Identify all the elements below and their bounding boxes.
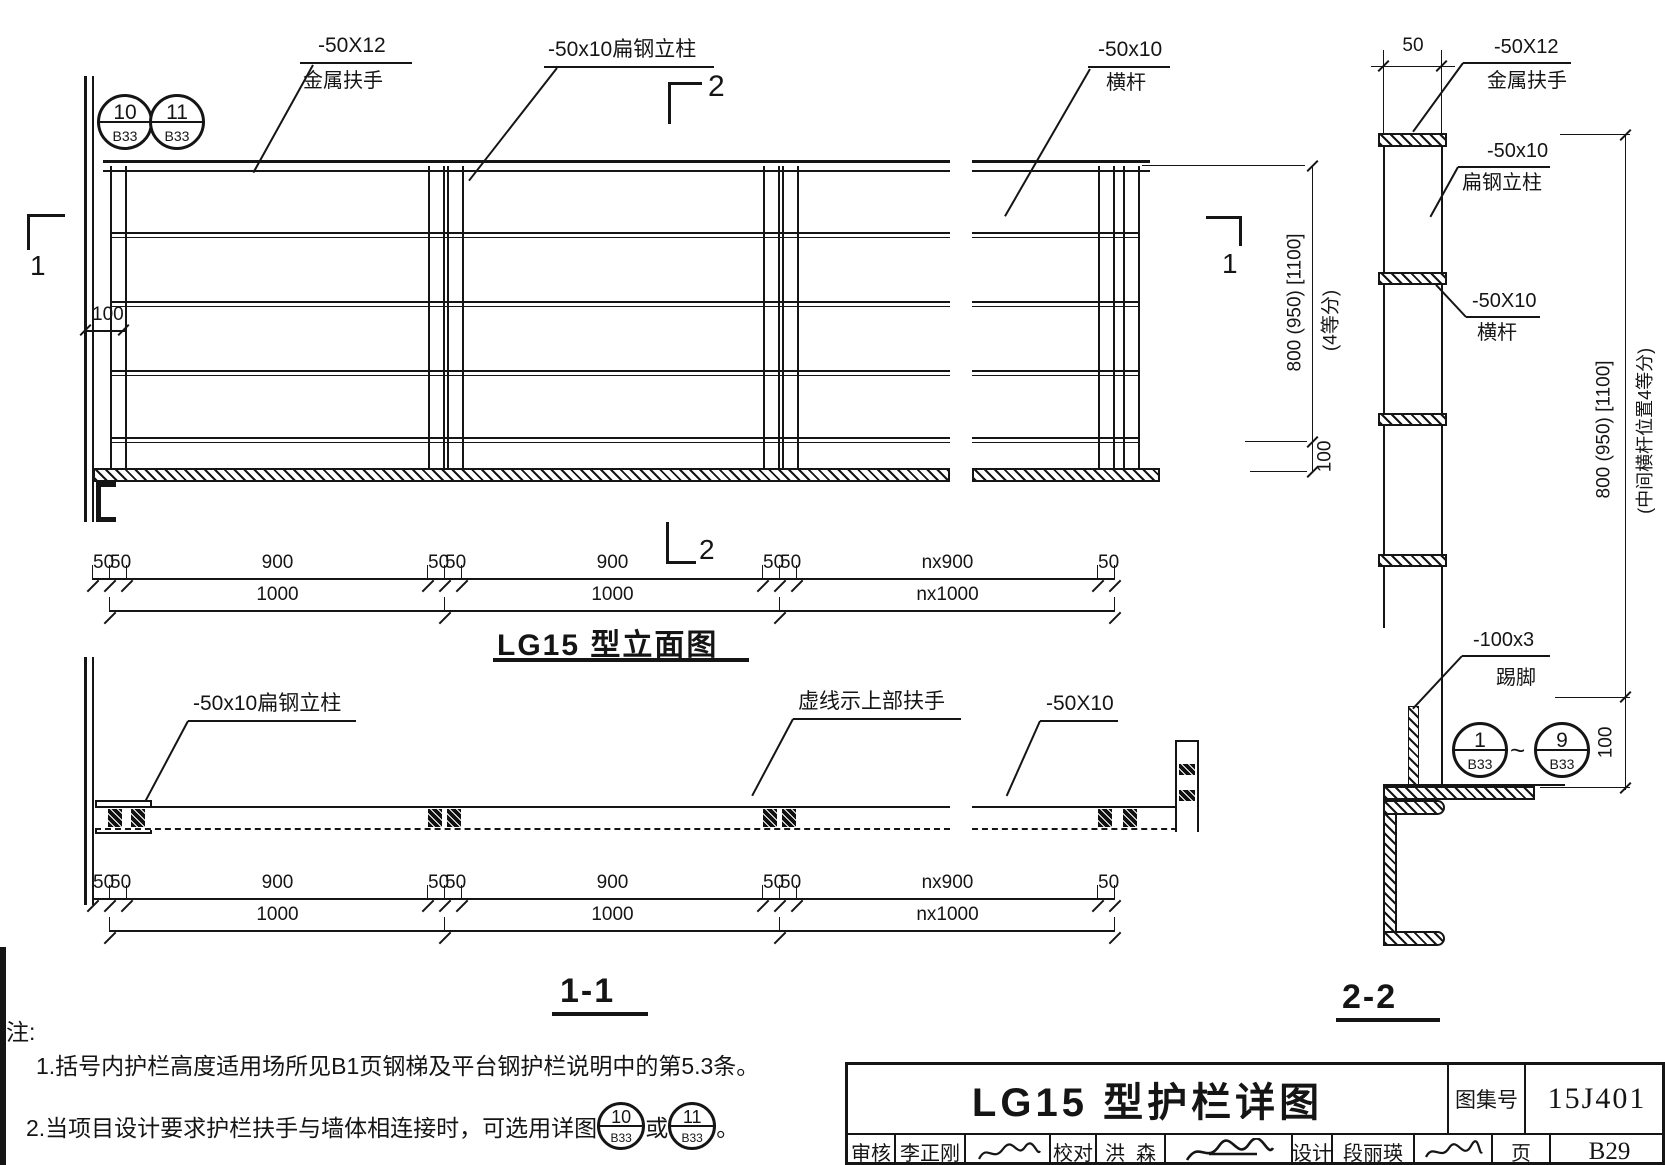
dim-segment: nx900 (797, 556, 1098, 580)
leader-underline (793, 718, 961, 720)
drawing-sheet: 10 B33 11 B33 (0, 0, 1665, 1165)
plan-post (1098, 809, 1112, 827)
post-spec: -50x10扁钢立柱 (193, 692, 341, 715)
callout-ref: B33 (1455, 756, 1505, 772)
dim-segment: 50 (780, 876, 797, 900)
note-item-2: 2.当项目设计要求护栏扶手与墙体相连接时，可选用详图 10 B33 或 11 B… (26, 1102, 739, 1150)
plan-corner-strip (1175, 740, 1199, 832)
callout-tilde: ~ (1510, 736, 1525, 765)
dim-label: 50 (93, 552, 110, 574)
dim-label: 900 (462, 552, 763, 574)
leader-underline (188, 720, 356, 722)
plan-post (1123, 809, 1137, 827)
plan-post (763, 809, 777, 827)
dim-extension (1555, 697, 1630, 698)
callout-number: 11 (152, 101, 202, 125)
dim-extension (1245, 441, 1307, 442)
checker-name-cell: 洪 森 (1097, 1135, 1166, 1165)
designer-label: 设计 (1292, 1137, 1332, 1165)
post-line (782, 166, 784, 468)
dim-label: 50 (1098, 552, 1115, 574)
post-line (1113, 166, 1115, 468)
dim-segment: 50 (445, 876, 462, 900)
leader-line (1412, 655, 1463, 709)
dim-label: 900 (462, 872, 763, 894)
plan-rail-strip (972, 806, 1197, 830)
dim-segment: nx1000 (780, 588, 1115, 612)
leader-underline (300, 62, 412, 64)
leader-underline (1040, 720, 1118, 722)
post-line (797, 166, 799, 468)
channel-flange (1383, 931, 1445, 946)
post-line (125, 166, 127, 468)
post-line (763, 166, 765, 468)
channel-section (96, 482, 101, 522)
detail-callout-10-b33: 10 B33 (597, 1102, 645, 1150)
callout-ref: B33 (600, 1131, 642, 1145)
dim-label: nx900 (797, 552, 1098, 574)
dim-segment: 1000 (445, 588, 780, 612)
dim-segment: 50 (93, 876, 110, 900)
rail-section (1378, 413, 1447, 426)
dim-label: 50 (780, 872, 797, 894)
dim-segment: nx900 (797, 876, 1098, 900)
post-line (447, 166, 449, 468)
leader-underline (544, 66, 714, 68)
leader-underline (1088, 66, 1170, 68)
post-line (778, 166, 780, 468)
note-item-2-or: 或 (645, 1109, 668, 1143)
signature-icon (1421, 1139, 1485, 1165)
floor-plate (972, 468, 1160, 482)
title-underline (552, 1012, 648, 1016)
title-underline (1336, 1018, 1440, 1022)
section-2-2-title: 2-2 (1342, 978, 1397, 1017)
atlas-number-cell: 15J401 (1526, 1065, 1665, 1135)
floor-plate (1383, 786, 1535, 800)
channel-flange (1383, 800, 1445, 815)
dimension-row: 505090050509005050nx90050 (93, 876, 1115, 898)
dim-label: 50 (428, 552, 445, 574)
dim-extension (1540, 787, 1630, 788)
dim-height: 800 (950) [1100] (1595, 209, 1616, 649)
leader-line (1429, 167, 1458, 218)
dim-label: 900 (127, 872, 428, 894)
dim-segment: 50 (110, 556, 127, 580)
dim-line-vertical (1312, 166, 1313, 472)
callout-number: 9 (1537, 729, 1587, 753)
dim-segment: 900 (127, 876, 428, 900)
designer-signature-cell (1415, 1135, 1493, 1165)
dim-label: nx1000 (780, 584, 1115, 606)
detail-callout-11-b33: 11 B33 (149, 94, 205, 150)
atlas-number: 15J401 (1548, 1082, 1647, 1116)
channel-section (96, 517, 116, 522)
callout-ref: B33 (152, 128, 202, 144)
callout-ref: B33 (1537, 756, 1587, 772)
dim-segment: nx1000 (780, 908, 1115, 932)
leader-line (751, 719, 794, 797)
drawing-title: LG15 型护栏详图 (972, 1070, 1323, 1128)
section-marker-2-top (668, 82, 671, 124)
post-line (428, 166, 430, 468)
plan-post (1179, 790, 1195, 801)
rail-line (110, 232, 950, 238)
leader-underline (1462, 655, 1550, 657)
leader-underline (1458, 166, 1550, 168)
leader-line (1006, 721, 1041, 797)
page-label: 页 (1511, 1137, 1531, 1165)
checker-signature-cell (1166, 1135, 1293, 1165)
title-block: LG15 型护栏详图 图集号 15J401 审核 李正刚 校对 洪 森 设计 (845, 1062, 1665, 1165)
signature-icon (1179, 1138, 1279, 1165)
dim-line-vertical (1625, 135, 1626, 790)
handrail (103, 160, 950, 172)
dim-segment: 50 (428, 876, 445, 900)
rail-line (110, 301, 950, 307)
dim-bottom: 100 (1597, 712, 1618, 772)
dim-label: 50 (110, 552, 127, 574)
page-number: B29 (1589, 1138, 1631, 1165)
plan-post (131, 809, 145, 827)
dim-segment: 900 (462, 556, 763, 580)
dim-label: 1000 (445, 904, 780, 926)
section-marker-1-right (1239, 216, 1242, 246)
plan-post (1179, 764, 1195, 775)
section-marker-2-top (668, 82, 702, 85)
dim-label: nx1000 (780, 904, 1115, 926)
callout-number: 11 (671, 1107, 713, 1128)
post-line (1098, 166, 1100, 468)
dim-segment: 50 (1098, 556, 1115, 580)
reviewer-name: 李正刚 (900, 1137, 960, 1165)
note-item-1: 1.括号内护栏高度适用场所见B1页钢梯及平台钢护栏说明中的第5.3条。 (36, 1054, 759, 1079)
rail-spec: -50X10 (1046, 692, 1114, 715)
callout-ref: B33 (671, 1131, 713, 1145)
dim-label: 50 (445, 552, 462, 574)
section-marker-1-left (27, 214, 65, 217)
signature-icon (973, 1139, 1043, 1165)
reviewer-label: 审核 (851, 1137, 891, 1165)
dim-segment: 50 (763, 556, 780, 580)
section-1-1-title: 1-1 (560, 972, 615, 1011)
dim-segment: 50 (445, 556, 462, 580)
wall-line (84, 76, 87, 522)
dim-segment: 1000 (445, 908, 780, 932)
checker-label-cell: 校对 (1051, 1135, 1097, 1165)
section-marker-label: 1 (30, 250, 46, 282)
post-name: 扁钢立柱 (1462, 172, 1542, 194)
wall-line (92, 657, 94, 905)
checker-label: 校对 (1053, 1137, 1093, 1165)
kick-name: 踢脚 (1496, 667, 1536, 689)
dim-height-note: (中间横杆位置4等分) (1636, 221, 1656, 641)
leader-line (1412, 62, 1464, 132)
rail-section (1378, 554, 1447, 567)
post-line (443, 166, 445, 468)
detail-callout-10-b33: 10 B33 (97, 94, 153, 150)
rail-name: 横杆 (1477, 322, 1517, 344)
leader-underline (1463, 62, 1571, 64)
callout-number: 10 (100, 101, 150, 125)
dim-wall-gap: 100 (92, 305, 124, 326)
title-underline (493, 658, 749, 662)
plan-post (447, 809, 461, 827)
dim-height: 800 (950) [1100] (1286, 187, 1307, 417)
dim-extension (1250, 471, 1307, 472)
dimension-row: 10001000nx1000 (110, 588, 1115, 610)
leader-line (1435, 284, 1466, 318)
dim-label: 50 (110, 872, 127, 894)
rail-spec: -50x10 (1098, 38, 1162, 61)
dim-extension (1560, 134, 1630, 135)
reviewer-label-cell: 审核 (848, 1135, 896, 1165)
dim-extension (1142, 165, 1305, 166)
designer-name-cell: 段丽瑛 (1333, 1135, 1415, 1165)
dim-label: nx900 (797, 872, 1098, 894)
dim-segment: 50 (763, 876, 780, 900)
dim-top: 50 (1383, 36, 1443, 57)
post-line (1123, 166, 1125, 468)
dim-segment: 900 (127, 556, 428, 580)
wall-line (84, 657, 87, 905)
dim-segment: 50 (93, 556, 110, 580)
rail-line (110, 370, 950, 376)
dim-label: 50 (1098, 872, 1115, 894)
kick-plate (1408, 706, 1419, 790)
handrail-spec: -50X12 (318, 34, 386, 57)
callout-number: 1 (1455, 729, 1505, 753)
section-marker-label: 2 (708, 70, 725, 104)
dim-segment: 50 (428, 556, 445, 580)
floor-plate (93, 468, 950, 482)
plan-post (108, 809, 122, 827)
dim-label: 1000 (445, 584, 780, 606)
section-marker-1-left (27, 214, 30, 250)
rail-name: 横杆 (1106, 72, 1146, 94)
leader-line (252, 65, 313, 174)
plan-post (782, 809, 796, 827)
rail-spec: -50X10 (1472, 290, 1537, 312)
dim-label: 900 (127, 552, 428, 574)
designer-label-cell: 设计 (1293, 1135, 1333, 1165)
dim-segment: 1000 (110, 588, 445, 612)
drawing-title-cell: LG15 型护栏详图 (848, 1065, 1449, 1135)
dim-segment: 50 (110, 876, 127, 900)
kick-spec: -100x3 (1473, 629, 1534, 651)
reviewer-signature-cell (966, 1135, 1051, 1165)
post-line (1441, 146, 1443, 788)
handrail-spec: -50X12 (1494, 36, 1559, 58)
callout-number: 10 (600, 1107, 642, 1128)
detail-callout-9-b33: 9 B33 (1534, 722, 1590, 778)
detail-callout-11-b33: 11 B33 (668, 1102, 716, 1150)
atlas-label: 图集号 (1455, 1084, 1518, 1114)
dimension-row: 10001000nx1000 (110, 908, 1115, 930)
callout-ref: B33 (100, 128, 150, 144)
dim-segment: 50 (1098, 876, 1115, 900)
dim-label: 1000 (110, 904, 445, 926)
rail-line (110, 437, 950, 443)
note-item-2-text: 2.当项目设计要求护栏扶手与墙体相连接时，可选用详图 (26, 1109, 597, 1143)
plan-post (428, 809, 442, 827)
dim-label: 50 (445, 872, 462, 894)
post-line (1138, 166, 1140, 468)
atlas-label-cell: 图集号 (1449, 1065, 1526, 1135)
leader-line (145, 721, 189, 801)
handrail-name: 金属扶手 (1487, 70, 1567, 92)
designer-name: 段丽瑛 (1343, 1137, 1403, 1165)
dashed-handrail-note: 虚线示上部扶手 (798, 690, 945, 713)
dim-height-note: (4等分) (1322, 265, 1343, 375)
post-spec: -50x10扁钢立柱 (548, 38, 696, 61)
section-marker-label: 1 (1222, 248, 1238, 280)
dim-label: 1000 (110, 584, 445, 606)
leader-line (1004, 69, 1091, 217)
note-item-2-period: 。 (716, 1109, 739, 1143)
page-label-cell: 页 (1493, 1135, 1551, 1165)
sheet-border (0, 947, 6, 1165)
dim-label: 50 (93, 872, 110, 894)
post-spec: -50x10 (1487, 140, 1548, 162)
dim-segment: 1000 (110, 908, 445, 932)
dim-label: 50 (763, 872, 780, 894)
leader-underline (1466, 316, 1540, 318)
detail-callout-1-b33: 1 B33 (1452, 722, 1508, 778)
dim-bottom: 100 (1316, 426, 1337, 486)
channel-section (96, 482, 116, 487)
checker-name: 洪 森 (1105, 1137, 1156, 1165)
handrail-name: 金属扶手 (303, 70, 383, 92)
dimension-row: 505090050509005050nx90050 (93, 556, 1115, 578)
post-line (462, 166, 464, 468)
dim-label: 50 (780, 552, 797, 574)
rail-section (1378, 272, 1447, 285)
reviewer-name-cell: 李正刚 (896, 1135, 966, 1165)
channel-web (1383, 800, 1397, 946)
page-number-cell: B29 (1551, 1135, 1665, 1165)
dim-segment: 900 (462, 876, 763, 900)
section-marker-1-right (1206, 216, 1242, 219)
notes-heading: 注: (6, 1020, 35, 1045)
handrail-section (1378, 133, 1447, 147)
plan-rail-strip (95, 806, 950, 830)
wall-line (92, 76, 94, 522)
dim-segment: 50 (780, 556, 797, 580)
dim-label: 50 (428, 872, 445, 894)
dim-label: 50 (763, 552, 780, 574)
